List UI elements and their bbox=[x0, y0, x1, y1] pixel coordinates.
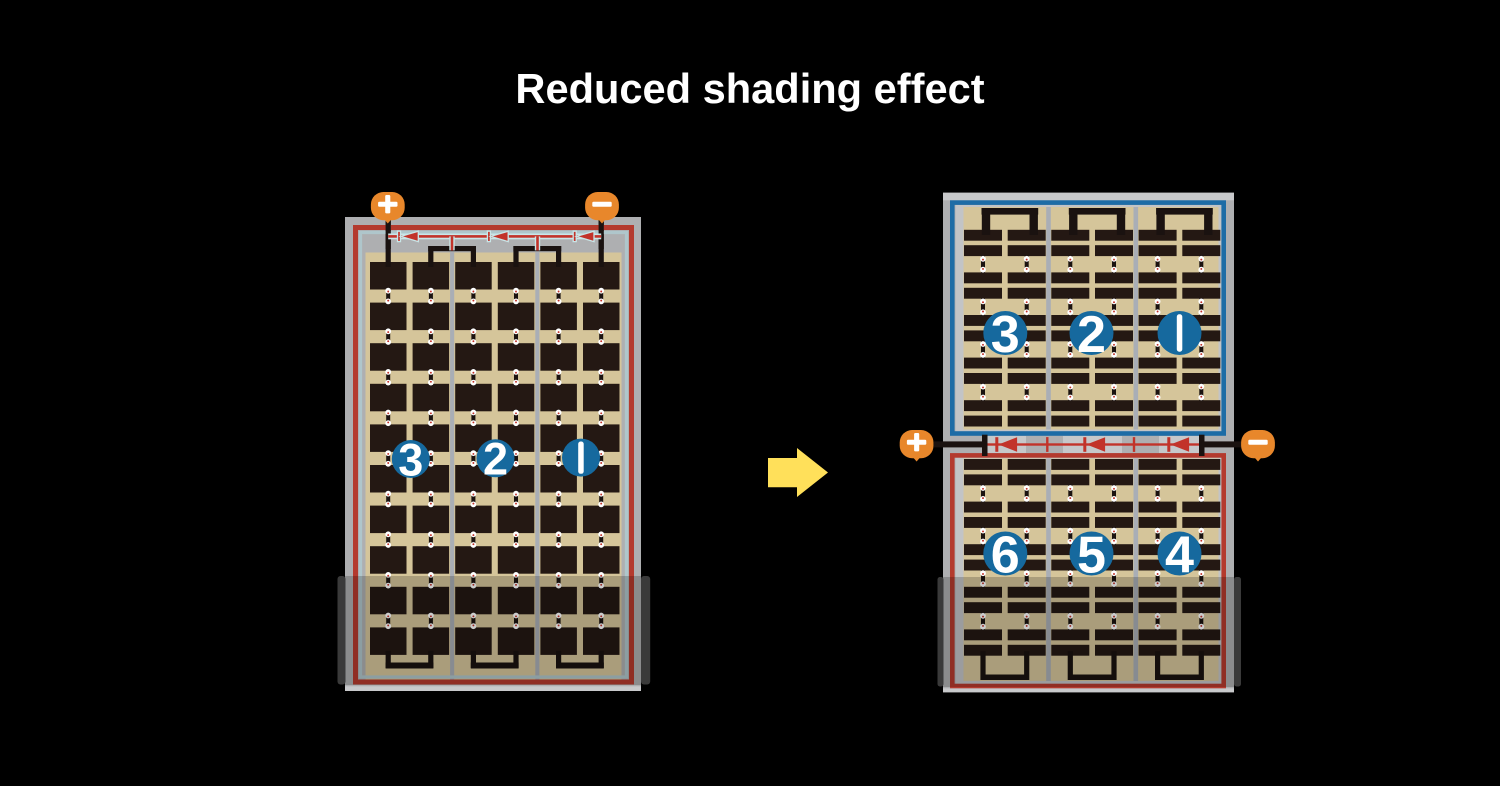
svg-text:3: 3 bbox=[991, 306, 1020, 364]
svg-text:2: 2 bbox=[1077, 306, 1106, 364]
svg-text:3: 3 bbox=[398, 434, 423, 485]
svg-text:4: 4 bbox=[1165, 527, 1194, 585]
svg-text:Reduced shading effect: Reduced shading effect bbox=[515, 65, 984, 112]
svg-text:5: 5 bbox=[1077, 527, 1106, 585]
svg-text:2: 2 bbox=[483, 434, 508, 485]
svg-text:6: 6 bbox=[991, 527, 1020, 585]
